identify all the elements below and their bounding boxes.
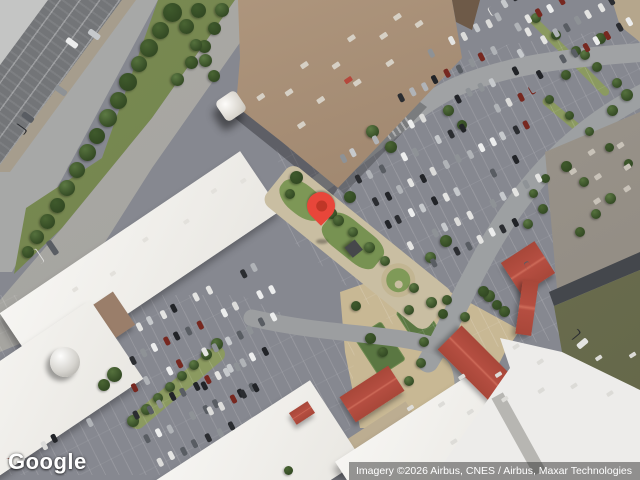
- tree: [215, 3, 229, 17]
- tree: [404, 305, 414, 315]
- tree: [425, 252, 436, 263]
- tree: [59, 180, 75, 196]
- tree: [440, 235, 452, 247]
- parked-cars: [188, 386, 197, 396]
- tree: [177, 371, 187, 381]
- tree: [89, 128, 105, 144]
- tree: [285, 189, 295, 199]
- tree: [333, 215, 344, 226]
- tree: [365, 333, 376, 344]
- tree: [443, 105, 454, 116]
- google-logo[interactable]: Google: [8, 449, 87, 475]
- tree: [199, 54, 212, 67]
- tree: [348, 227, 358, 237]
- rooftop-units: [520, 386, 528, 393]
- tree: [523, 219, 533, 229]
- tree: [580, 50, 590, 60]
- parked-cars: [524, 262, 533, 272]
- tree: [40, 214, 55, 229]
- tree: [416, 358, 426, 368]
- tree: [426, 297, 437, 308]
- tree: [50, 198, 65, 213]
- tree: [99, 109, 117, 127]
- tree: [141, 404, 152, 415]
- parked-cars: [30, 249, 44, 266]
- tree: [208, 22, 221, 35]
- tree: [404, 376, 414, 386]
- tree: [119, 73, 137, 91]
- tree: [171, 73, 184, 86]
- tree: [127, 415, 139, 427]
- tree: [531, 13, 541, 23]
- tree: [110, 92, 127, 109]
- map-pin-dot: [313, 198, 329, 214]
- tree: [185, 56, 198, 69]
- rooftop-units: [245, 91, 254, 100]
- tree: [591, 209, 601, 219]
- tree: [344, 191, 356, 203]
- tree: [131, 56, 147, 72]
- tree: [98, 379, 110, 391]
- parked-cars: [96, 342, 105, 352]
- tree: [165, 382, 175, 392]
- tree: [585, 127, 594, 136]
- parked-cars: [12, 123, 26, 135]
- tree: [551, 30, 561, 40]
- tree: [529, 189, 538, 198]
- tree: [607, 105, 618, 116]
- tree: [378, 347, 388, 357]
- tree: [605, 193, 616, 204]
- pin-shadow: [316, 239, 328, 244]
- tree: [478, 286, 489, 297]
- tree: [364, 242, 375, 253]
- tree: [460, 312, 470, 322]
- tree: [107, 367, 122, 382]
- tree: [605, 143, 614, 152]
- rooftop-units: [392, 404, 400, 411]
- tree: [189, 360, 199, 370]
- tree: [561, 70, 571, 80]
- tree: [457, 120, 467, 130]
- tree: [163, 3, 182, 22]
- tree: [419, 337, 429, 347]
- tree: [69, 162, 85, 178]
- tree: [30, 230, 44, 244]
- tree: [541, 174, 550, 183]
- tree: [565, 111, 574, 120]
- parked-cars: [292, 116, 301, 126]
- tree: [545, 95, 554, 104]
- satellite-map[interactable]: Google Imagery ©2026 Airbus, CNES / Airb…: [0, 0, 640, 480]
- tree: [442, 295, 452, 305]
- tree: [612, 78, 622, 88]
- imagery-attribution: Imagery ©2026 Airbus, CNES / Airbus, Max…: [349, 462, 640, 480]
- tree: [140, 39, 158, 57]
- parked-cars: [567, 328, 580, 340]
- tree: [624, 159, 633, 168]
- tree: [153, 393, 163, 403]
- tree: [438, 309, 448, 319]
- tree: [579, 177, 589, 187]
- tree: [592, 62, 602, 72]
- tree: [179, 19, 194, 34]
- tree: [208, 70, 220, 82]
- tree: [366, 125, 379, 138]
- tree: [79, 144, 96, 161]
- parked-cars: [488, 6, 497, 16]
- tree: [211, 338, 223, 350]
- tree: [492, 300, 502, 310]
- tree: [538, 204, 548, 214]
- tree: [190, 39, 202, 51]
- tree: [201, 349, 212, 360]
- tree: [571, 46, 581, 56]
- tree: [284, 466, 293, 475]
- tree: [290, 171, 303, 184]
- tree: [385, 141, 397, 153]
- tree: [351, 301, 361, 311]
- tree: [191, 3, 206, 18]
- tree: [380, 256, 390, 266]
- tree: [409, 283, 419, 293]
- tree: [621, 89, 633, 101]
- rooftop-units: [60, 287, 67, 294]
- tree: [595, 33, 606, 44]
- tree: [575, 227, 585, 237]
- parked-cars: [528, 84, 537, 94]
- tree: [152, 22, 169, 39]
